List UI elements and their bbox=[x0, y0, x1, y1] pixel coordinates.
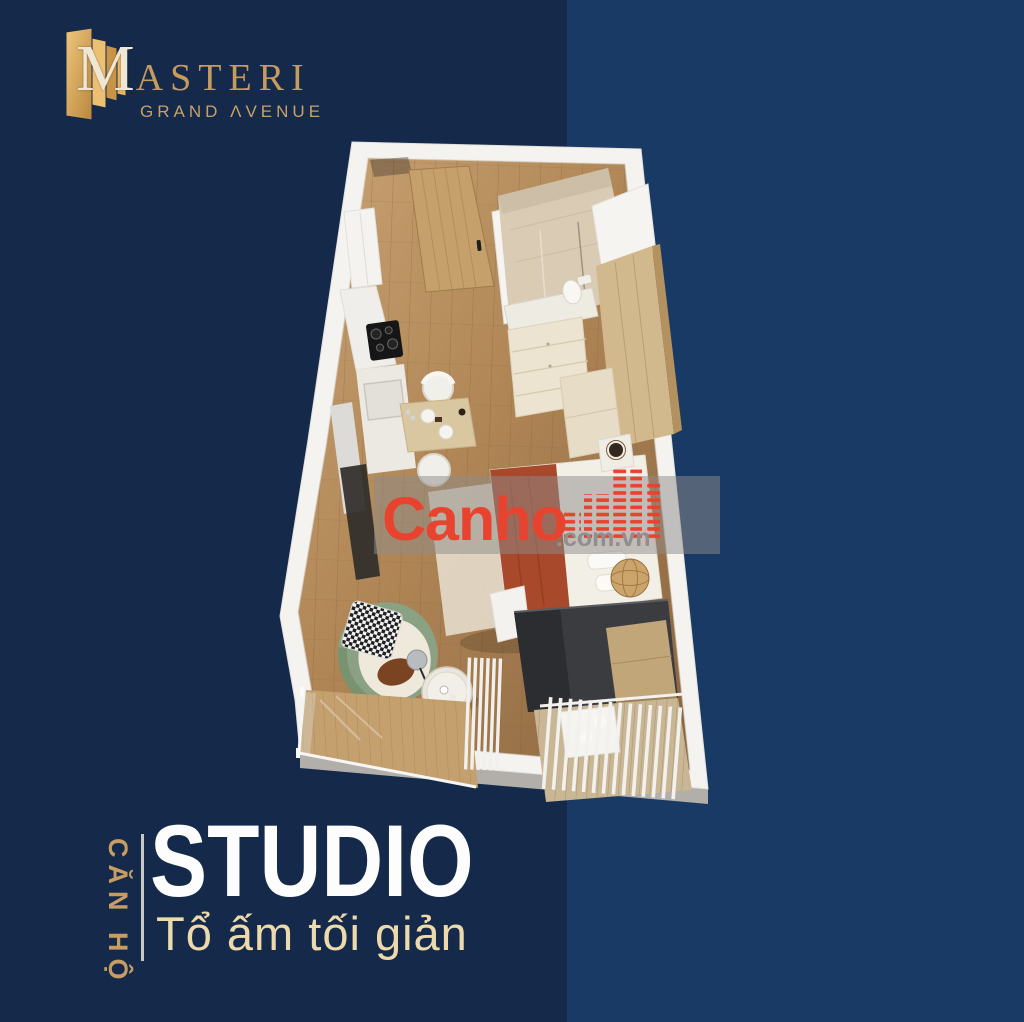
desk-icon bbox=[606, 620, 676, 702]
table-lamp-icon bbox=[609, 443, 623, 457]
masteri-logo: MASTERI GRAND ΛVENUE bbox=[60, 22, 340, 132]
caption-divider bbox=[141, 834, 144, 961]
watermark-suffix: .com.vn bbox=[556, 524, 650, 552]
logo-initial: M bbox=[76, 36, 135, 102]
wine-bottle-icon bbox=[459, 409, 466, 416]
watermark: Canho .com.vn bbox=[374, 466, 720, 554]
balcony-right bbox=[534, 694, 692, 802]
pendant-lamp-icon bbox=[611, 559, 649, 597]
logo-brand-name: ASTERI bbox=[136, 59, 311, 97]
dining-table-icon bbox=[400, 398, 476, 452]
logo-tagline: GRAND ΛVENUE bbox=[140, 102, 324, 122]
chrome-lamp-icon bbox=[407, 650, 427, 670]
caption-vertical-label: CĂN HỘ bbox=[102, 838, 133, 987]
cooktop-icon bbox=[366, 320, 404, 361]
caption-subtitle: Tổ ấm tối giản bbox=[156, 906, 468, 961]
caption-title: STUDIO bbox=[150, 810, 474, 912]
watermark-brand: Canho bbox=[382, 485, 567, 553]
